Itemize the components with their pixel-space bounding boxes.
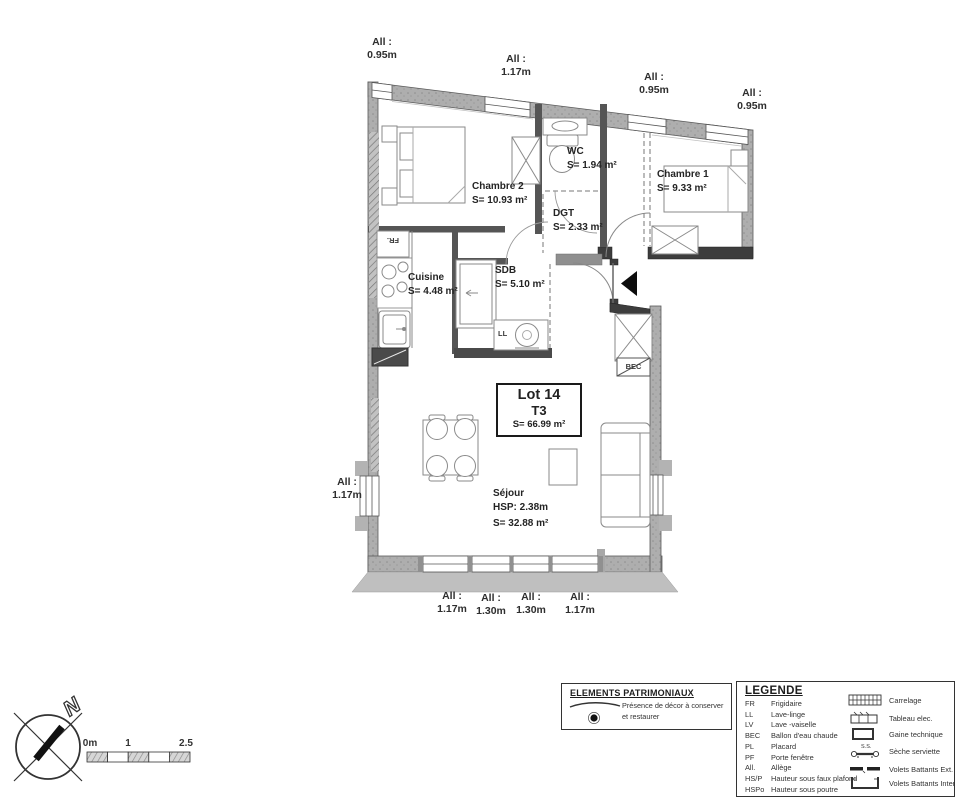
window-label-left: All :1.17m: [315, 476, 379, 502]
shower-icon: [456, 260, 496, 328]
lot-info-box: Lot 14 T3 S= 66.99 m²: [496, 383, 582, 437]
tableau-elec-icon: [847, 710, 885, 726]
lot-number: Lot 14: [500, 388, 578, 404]
floor-plan-drawing: N: [0, 0, 958, 800]
washer-tag: LL: [498, 329, 507, 338]
compass-north-label: N: [59, 693, 85, 721]
window-label-top-4: All :0.95m: [720, 87, 784, 113]
elements-patrimoniaux-box: ELEMENTS PATRIMONIAUX Présence de décor …: [561, 683, 732, 730]
scale-bar: [87, 752, 190, 762]
legend-row-fr: FRFrigidaire: [745, 699, 802, 708]
legend-row-hsp: HS/PHauteur sous faux plafond: [745, 774, 857, 783]
patrimoniaux-line-1: Présence de décor à conserver: [622, 701, 723, 710]
carrelage-grid-icon: [847, 692, 885, 708]
sofa: [601, 423, 650, 527]
legend-row-all: All.Allège: [745, 763, 792, 772]
room-label-dgt: DGTS= 2.33 m²: [553, 207, 603, 234]
legend-row-ll: LLLave-linge: [745, 710, 805, 719]
window-label-top-2: All :1.17m: [484, 53, 548, 79]
fridge-tag: FR.: [381, 236, 405, 245]
bottom-windows: [418, 556, 603, 572]
room-label-cuisine: CuisineS= 4.48 m²: [408, 271, 458, 298]
legend-symbol-gaine: Gaine technique: [847, 726, 943, 742]
scale-label-0m: 0m: [78, 738, 102, 749]
scale-label-1: 1: [120, 738, 136, 749]
legende-box: LEGENDE FRFrigidaire LLLave-linge LVLave…: [736, 681, 955, 797]
patrimoniaux-line-2: et restaurer: [622, 712, 659, 721]
legend-symbol-seche-serviette: S.S. Sèche serviette: [847, 742, 940, 760]
room-label-sejour: SéjourHSP: 2.38mS= 32.88 m²: [493, 487, 548, 531]
decor-curve-icon: [568, 699, 624, 725]
window-label-top-3: All :0.95m: [622, 71, 686, 97]
compass-icon: N: [14, 693, 85, 781]
legend-symbol-carrelage: Carrelage: [847, 692, 921, 708]
lot-type: T3: [500, 404, 578, 419]
legend-row-pf: PFPorte fenêtre: [745, 753, 814, 762]
gaine-technique-icon: [847, 726, 885, 742]
svg-text:S.S.: S.S.: [861, 744, 872, 750]
legend-symbol-volets-inter: Volets Battants Inter: [847, 774, 955, 792]
coffee-table: [549, 449, 577, 485]
legend-row-lv: LVLave -vaiselle: [745, 720, 816, 729]
room-label-chambre-2: Chambre 2S= 10.93 m²: [472, 180, 527, 207]
bed-chambre-2: [382, 126, 465, 205]
patrimoniaux-title: ELEMENTS PATRIMONIAUX: [570, 688, 694, 698]
legend-row-pl: PLPlacard: [745, 742, 796, 751]
legende-title: LEGENDE: [745, 685, 803, 697]
wardrobe-chambre-2: [512, 137, 540, 184]
boiler-tag: BEC: [618, 362, 649, 371]
washbasin-icon: [543, 118, 587, 135]
window-label-bottom-4: All :1.17m: [548, 591, 612, 617]
volets-battants-inter-icon: [847, 774, 885, 792]
lot-area: S= 66.99 m²: [500, 419, 578, 431]
room-label-wc: WCS= 1.94 m²: [567, 145, 617, 172]
entry-arrow-icon: [621, 271, 637, 296]
room-label-chambre-1: Chambre 1S= 9.33 m²: [657, 168, 709, 195]
floor-plan-page: N All :0.95m All :1.17m All :0.95m All :…: [0, 0, 958, 800]
room-label-sdb: SDBS= 5.10 m²: [495, 264, 545, 291]
scale-label-2-5: 2.5: [174, 738, 198, 749]
legend-row-bec: BECBallon d'eau chaude: [745, 731, 838, 740]
legend-symbol-tableau-elec: Tableau elec.: [847, 710, 933, 726]
legend-row-hspo: HSPoHauteur sous poutre: [745, 785, 838, 794]
window-label-top-1: All :0.95m: [350, 36, 414, 62]
seche-serviette-icon: S.S.: [847, 742, 885, 760]
wardrobe-chambre-1: [652, 226, 698, 254]
